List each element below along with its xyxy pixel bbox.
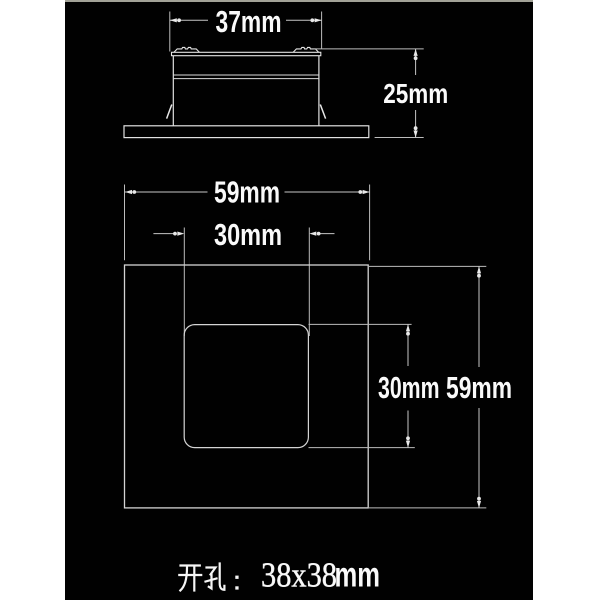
svg-text:59mm: 59mm — [214, 175, 280, 210]
svg-text:mm: mm — [335, 556, 381, 595]
svg-text:30mm: 30mm — [214, 217, 282, 252]
svg-text:59mm: 59mm — [446, 370, 512, 405]
svg-text:25mm: 25mm — [383, 78, 448, 109]
svg-text:37mm: 37mm — [216, 4, 282, 39]
svg-text:30mm: 30mm — [378, 370, 440, 405]
svg-text:38x38: 38x38 — [261, 556, 337, 595]
